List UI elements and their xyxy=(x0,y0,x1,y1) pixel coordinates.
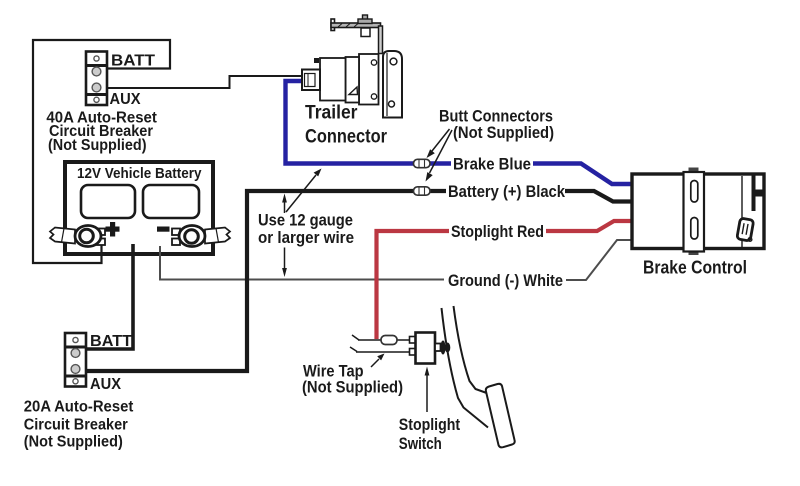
svg-text:(Not Supplied): (Not Supplied) xyxy=(453,124,554,142)
svg-text:Stoplight: Stoplight xyxy=(399,416,461,434)
svg-text:(Not Supplied): (Not Supplied) xyxy=(24,433,123,450)
svg-text:Battery (+) Black: Battery (+) Black xyxy=(448,183,566,201)
svg-text:(Not Supplied): (Not Supplied) xyxy=(48,137,147,154)
svg-text:Butt Connectors: Butt Connectors xyxy=(439,108,553,126)
svg-text:Trailer: Trailer xyxy=(305,103,358,124)
svg-text:or larger wire: or larger wire xyxy=(258,229,354,247)
svg-text:Use 12 gauge: Use 12 gauge xyxy=(258,212,353,230)
svg-text:Brake Blue: Brake Blue xyxy=(453,156,531,174)
svg-text:BATT: BATT xyxy=(90,333,132,350)
svg-text:Connector: Connector xyxy=(305,127,388,148)
svg-text:Circuit Breaker: Circuit Breaker xyxy=(24,416,128,433)
svg-text:AUX: AUX xyxy=(90,376,121,393)
svg-text:Ground (-) White: Ground (-) White xyxy=(448,272,563,290)
svg-text:Brake Control: Brake Control xyxy=(643,257,747,278)
svg-text:20A Auto-Reset: 20A Auto-Reset xyxy=(24,398,134,415)
svg-text:AUX: AUX xyxy=(110,91,141,108)
svg-text:Switch: Switch xyxy=(399,435,442,453)
svg-text:Stoplight Red: Stoplight Red xyxy=(451,223,544,241)
svg-text:12V Vehicle Battery: 12V Vehicle Battery xyxy=(77,166,202,182)
svg-text:BATT: BATT xyxy=(111,53,155,70)
svg-text:(Not Supplied): (Not Supplied) xyxy=(302,379,403,397)
